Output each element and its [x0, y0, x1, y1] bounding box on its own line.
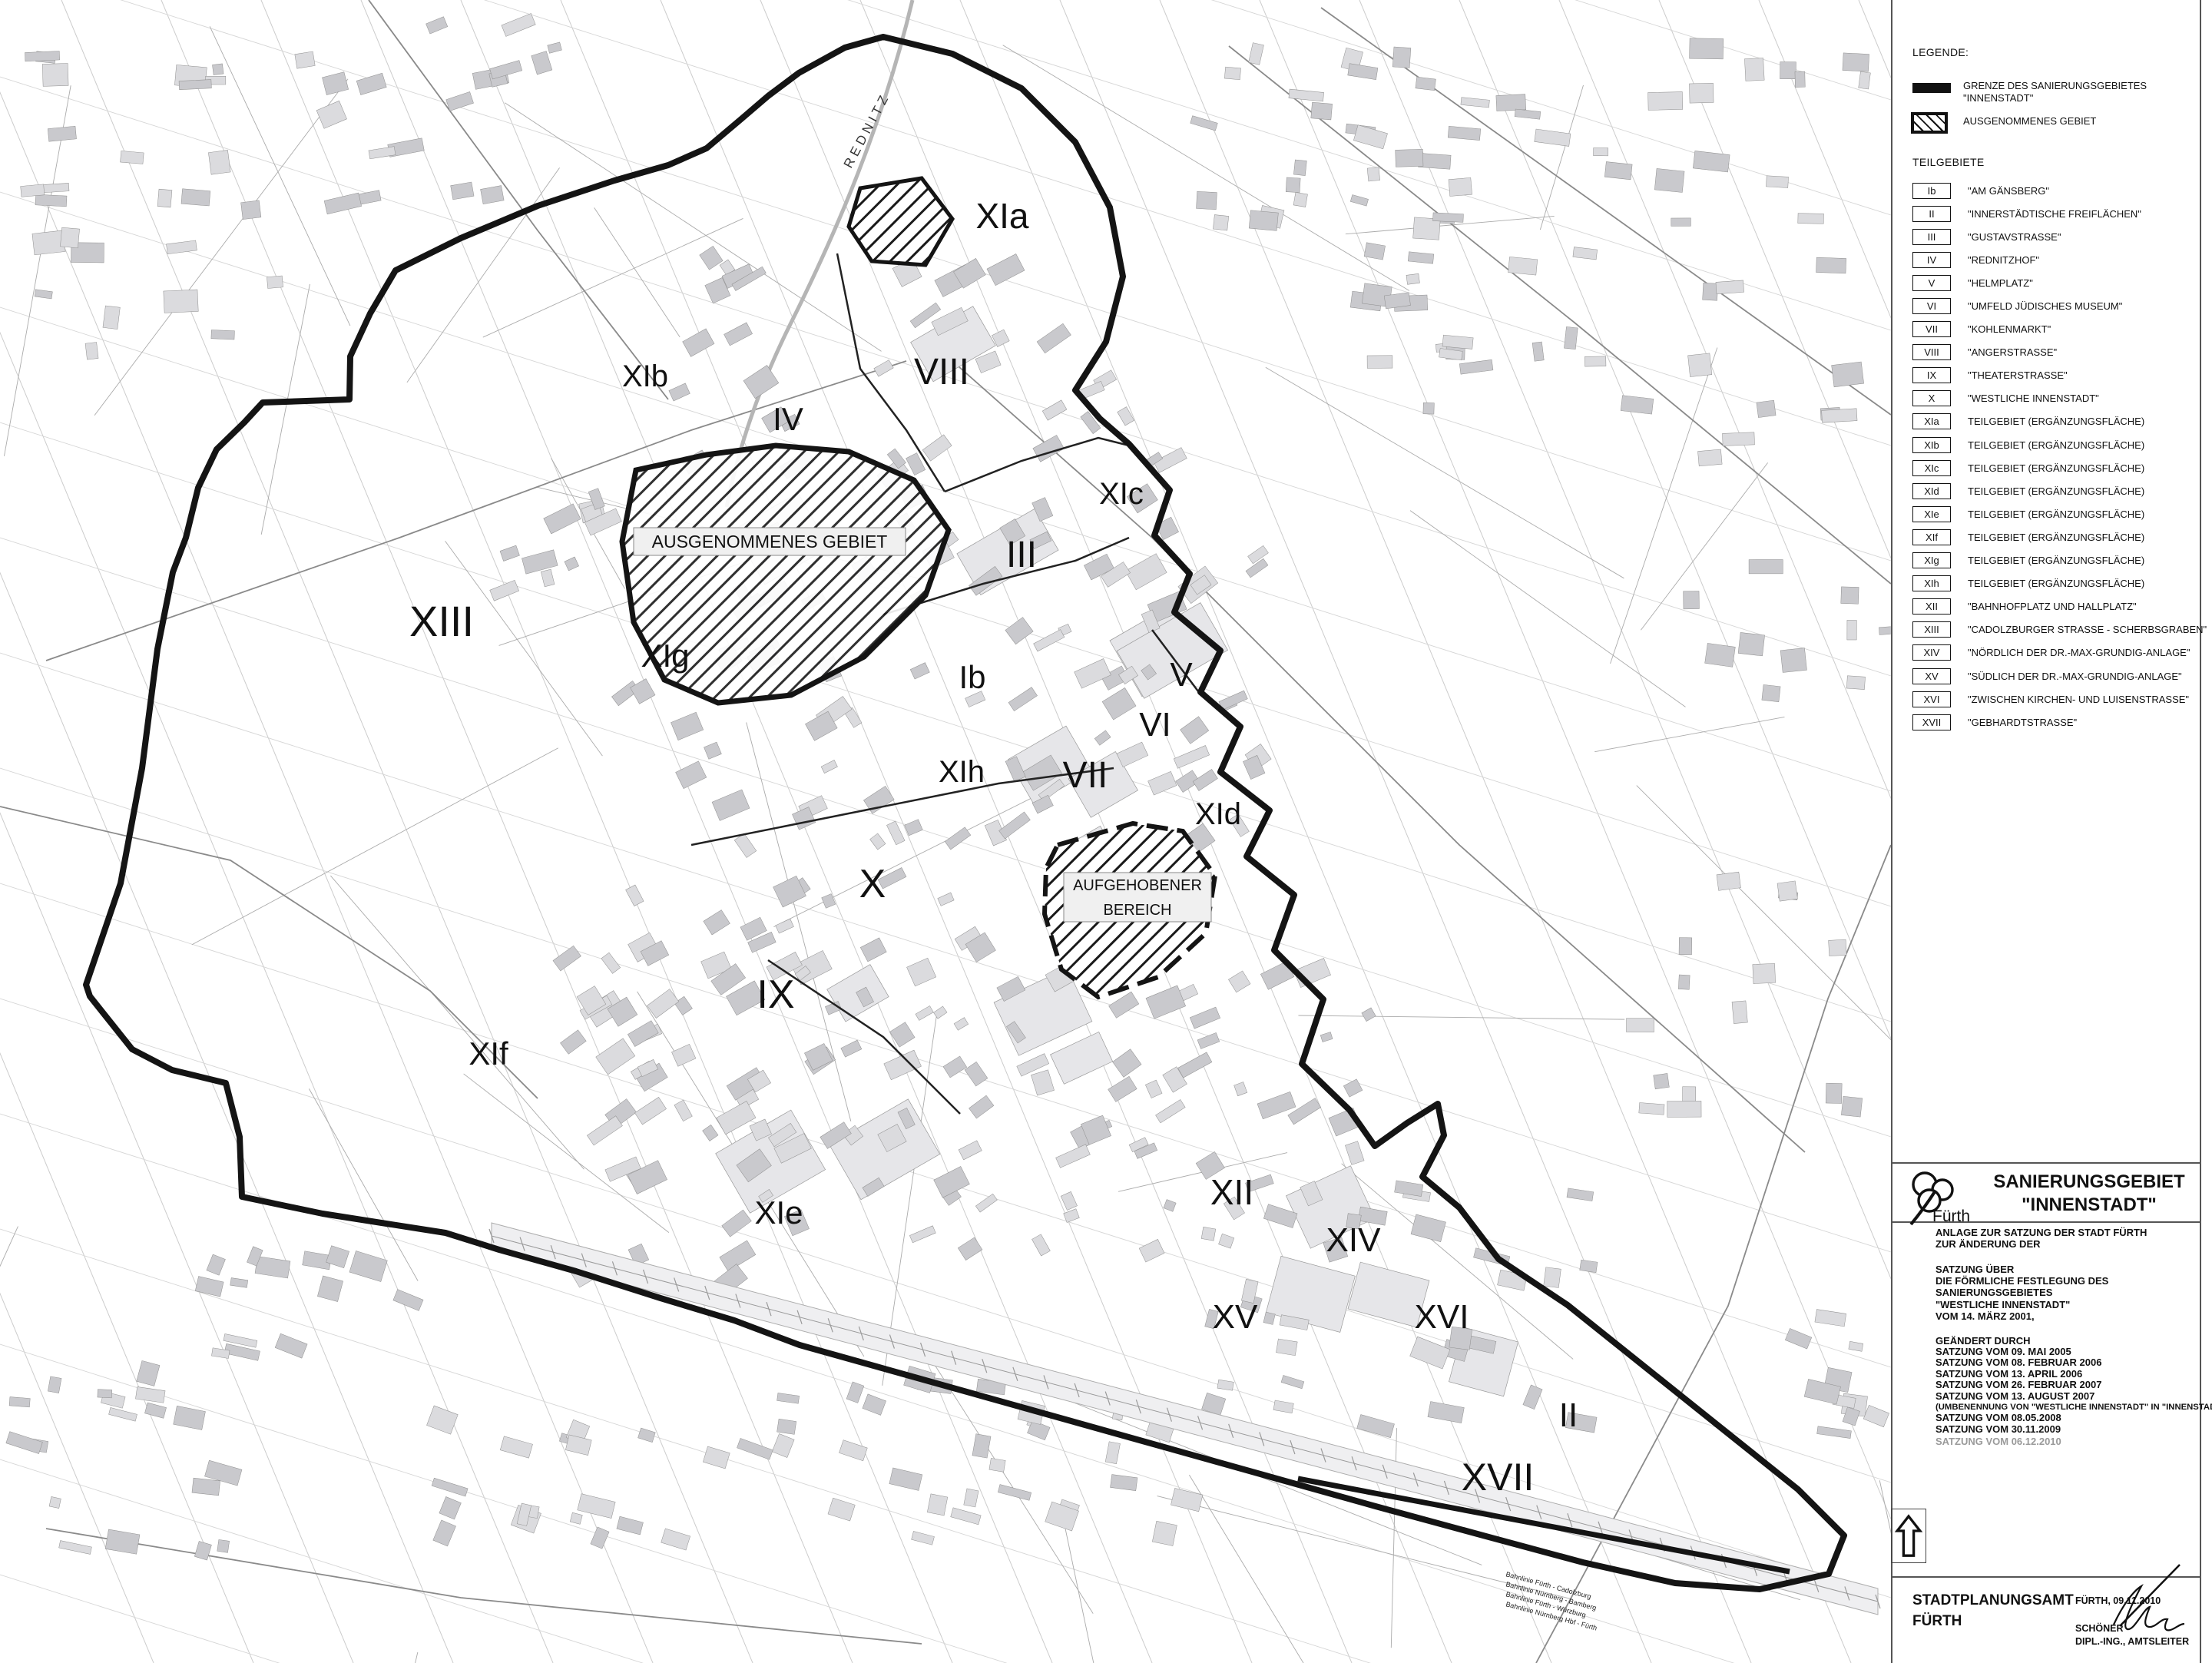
map-label-IV: IV: [773, 401, 803, 437]
plan-title: SANIERUNGSGEBIET "INNENSTADT": [1982, 1171, 2197, 1217]
map-label-XIa: XIa: [975, 196, 1028, 236]
river-label: REDNITZ: [841, 90, 893, 171]
teilgebiet-row: XV"SÜDLICH DER DR.-MAX-GRUNDIG-ANLAGE": [1912, 664, 2204, 687]
teilgebiet-name: TEILGEBIET (ERGÄNZUNGSFLÄCHE): [1968, 416, 2144, 427]
parcel-lines: [0, 0, 1891, 1663]
teilgebiet-row: XIhTEILGEBIET (ERGÄNZUNGSFLÄCHE): [1912, 572, 2204, 595]
office-name: STADTPLANUNGSAMT FÜRTH: [1912, 1590, 2074, 1632]
teilgebiet-code: XIb: [1912, 437, 1951, 453]
teilgebiet-row: XVII"GEBHARDTSTRASSE": [1912, 711, 2204, 734]
map-label-XIg: XIg: [641, 638, 689, 674]
teilgebiet-name: "CADOLZBURGER STRASSE - SCHERBSGRABEN": [1968, 624, 2207, 635]
teilgebiet-name: "NÖRDLICH DER DR.-MAX-GRUNDIG-ANLAGE": [1968, 647, 2190, 658]
teilgebiet-name: TEILGEBIET (ERGÄNZUNGSFLÄCHE): [1968, 555, 2144, 566]
title-block-line: SATZUNG VOM 30.11.2009: [1936, 1424, 2200, 1435]
map-label-XIb: XIb: [622, 359, 668, 393]
teilgebiet-code: Ib: [1912, 183, 1951, 199]
teilgebiet-name: TEILGEBIET (ERGÄNZUNGSFLÄCHE): [1968, 485, 2144, 497]
teilgebiet-name: "GUSTAVSTRASSE": [1968, 231, 2061, 243]
teilgebiet-name: "REDNITZHOF": [1968, 254, 2039, 266]
title-block-top-line: [1891, 1162, 2201, 1164]
teilgebiet-row: XIgTEILGEBIET (ERGÄNZUNGSFLÄCHE): [1912, 549, 2204, 572]
teilgebiet-row: VIII"ANGERSTRASSE": [1912, 341, 2204, 364]
plan-title-line2: "INNENSTADT": [1982, 1194, 2197, 1217]
teilgebiet-code: VII: [1912, 321, 1951, 337]
title-block-line: SATZUNG ÜBER: [1936, 1264, 2200, 1275]
map-label-XIII: XIII: [409, 597, 474, 645]
geaendert-gray-wrap: SATZUNG VOM 06.12.2010: [1936, 1436, 2200, 1447]
teilgebiet-row: Ib"AM GÄNSBERG": [1912, 179, 2204, 202]
office-line1: STADTPLANUNGSAMT: [1912, 1590, 2074, 1611]
teilgebiet-row: VI"UMFELD JÜDISCHES MUSEUM": [1912, 294, 2204, 317]
signature-icon: [2066, 1555, 2204, 1632]
teilgebiet-row: XII"BAHNHOFPLATZ UND HALLPLATZ": [1912, 595, 2204, 618]
satzung-text: SATZUNG ÜBERDIE FÖRMLICHE FESTLEGUNG DES…: [1936, 1264, 2200, 1322]
title-block-line: DIE FÖRMLICHE FESTLEGUNG DES: [1936, 1275, 2200, 1287]
teilgebiet-name: "HELMPLATZ": [1968, 277, 2033, 289]
map-label-III: III: [1006, 535, 1037, 575]
teilgebiet-code: XVII: [1912, 714, 1951, 730]
panel-divider-line: [1891, 0, 1892, 1663]
map-label-IX: IX: [757, 972, 794, 1017]
teilgebiet-row: IX"THEATERSTRASSE": [1912, 364, 2204, 387]
title-block-line: ZUR ÄNDERUNG DER: [1936, 1238, 2200, 1250]
teilgebiet-row: XIcTEILGEBIET (ERGÄNZUNGSFLÄCHE): [1912, 456, 2204, 479]
teilgebiet-code: XIh: [1912, 575, 1951, 591]
teilgebiet-row: II"INNERSTÄDTISCHE FREIFLÄCHEN": [1912, 202, 2204, 225]
teilgebiet-code: XII: [1912, 598, 1951, 615]
map-label-II: II: [1559, 1396, 1578, 1434]
geaendert-gray-line: SATZUNG VOM 06.12.2010: [1936, 1436, 2200, 1447]
teilgebiet-code: III: [1912, 229, 1951, 245]
teilgebiet-code: XIf: [1912, 529, 1951, 545]
map-label-Ib: Ib: [959, 659, 985, 695]
teilgebiet-code: XIe: [1912, 506, 1951, 522]
map-label-V: V: [1170, 656, 1193, 694]
excluded-area-small: [849, 178, 952, 265]
teilgebiet-row: XIII"CADOLZBURGER STRASSE - SCHERBSGRABE…: [1912, 618, 2204, 641]
map-label-X: X: [859, 862, 886, 906]
map-label-XIV: XIV: [1326, 1221, 1382, 1259]
plan-sheet: XIaXIbIVVIIIXIcIIIXIIIXIgIbVVIXIhVIIXIdX…: [0, 0, 2212, 1663]
teilgebiet-name: "UMFELD JÜDISCHES MUSEUM": [1968, 300, 2122, 312]
legend-excluded-label: AUSGENOMMENES GEBIET: [1963, 115, 2096, 128]
map-label-XId: XId: [1195, 797, 1241, 831]
map-label-XIh: XIh: [939, 755, 985, 789]
geaendert-list: SATZUNG VOM 09. MAI 2005SATZUNG VOM 08. …: [1936, 1347, 2200, 1435]
teilgebiet-code: VI: [1912, 298, 1951, 314]
title-block-line: ANLAGE ZUR SATZUNG DER STADT FÜRTH: [1936, 1227, 2200, 1238]
teilgebiet-name: "INNERSTÄDTISCHE FREIFLÄCHEN": [1968, 208, 2141, 220]
excluded-area-symbol: [1911, 112, 1948, 134]
boundary-line-symbol: [1912, 83, 1951, 93]
city-map: XIaXIbIVVIIIXIcIIIXIIIXIgIbVVIXIhVIIXIdX…: [0, 0, 1891, 1663]
geaendert-title: GEÄNDERT DURCH: [1936, 1335, 2200, 1347]
boundary-rail-strip: [1298, 1479, 1790, 1572]
map-label-XIe: XIe: [754, 1194, 803, 1231]
north-arrow-box: [1891, 1509, 1926, 1563]
title-block-line: SATZUNG VOM 26. FEBRUAR 2007: [1936, 1380, 2200, 1390]
teilgebiete-title: TEILGEBIETE: [1912, 156, 1985, 168]
teilgebiet-name: TEILGEBIET (ERGÄNZUNGSFLÄCHE): [1968, 532, 2144, 543]
teilgebiet-code: XIg: [1912, 552, 1951, 568]
anlage-text: ANLAGE ZUR SATZUNG DER STADT FÜRTHZUR ÄN…: [1936, 1227, 2200, 1250]
teilgebiet-code: XV: [1912, 668, 1951, 684]
teilgebiete-list: Ib"AM GÄNSBERG"II"INNERSTÄDTISCHE FREIFL…: [1912, 179, 2204, 734]
teilgebiet-name: "ANGERSTRASSE": [1968, 346, 2057, 358]
teilgebiet-code: XIII: [1912, 621, 1951, 638]
title-block-line: SATZUNG VOM 13. AUGUST 2007: [1936, 1391, 2200, 1402]
teilgebiet-code: XIV: [1912, 644, 1951, 661]
teilgebiet-name: "KOHLENMARKT": [1968, 323, 2051, 335]
teilgebiet-code: XId: [1912, 483, 1951, 499]
teilgebiet-row: VII"KOHLENMARKT": [1912, 318, 2204, 341]
teilgebiet-name: "GEBHARDTSTRASSE": [1968, 717, 2077, 728]
map-label-VIII: VIII: [914, 352, 969, 393]
teilgebiet-name: "SÜDLICH DER DR.-MAX-GRUNDIG-ANLAGE": [1968, 671, 2182, 682]
title-block-line: SATZUNG VOM 09. MAI 2005: [1936, 1347, 2200, 1357]
teilgebiet-name: TEILGEBIET (ERGÄNZUNGSFLÄCHE): [1968, 509, 2144, 520]
teilgebiet-row: III"GUSTAVSTRASSE": [1912, 225, 2204, 248]
signer-role: DIPL.-ING., AMTSLEITER: [2075, 1635, 2189, 1648]
title-block-line: SATZUNG VOM 13. APRIL 2006: [1936, 1369, 2200, 1380]
teilgebiet-code: IV: [1912, 252, 1951, 268]
teilgebiet-name: TEILGEBIET (ERGÄNZUNGSFLÄCHE): [1968, 439, 2144, 451]
map-label-XIc: XIc: [1099, 477, 1144, 511]
legend-boundary-line1: GRENZE DES SANIERUNGSGEBIETES: [1963, 80, 2147, 92]
map-label-XVII: XVII: [1462, 1456, 1534, 1499]
map-label-XIf: XIf: [469, 1035, 508, 1072]
teilgebiet-code: XVI: [1912, 691, 1951, 707]
north-arrow-icon: [1894, 1512, 1923, 1560]
teilgebiet-row: XIaTEILGEBIET (ERGÄNZUNGSFLÄCHE): [1912, 410, 2204, 433]
plan-title-line1: SANIERUNGSGEBIET: [1982, 1171, 2197, 1194]
teilgebiet-name: "WESTLICHE INNENSTADT": [1968, 393, 2099, 404]
title-block-line: VOM 14. MÄRZ 2001,: [1936, 1310, 2200, 1322]
teilgebiet-row: IV"REDNITZHOF": [1912, 248, 2204, 271]
teilgebiet-code: IX: [1912, 367, 1951, 383]
signer-block: SCHÖNER DIPL.-ING., AMTSLEITER: [2075, 1622, 2189, 1648]
map-label-VI: VI: [1139, 706, 1171, 744]
teilgebiet-name: "THEATERSTRASSE": [1968, 369, 2068, 381]
title-block-line: (UMBENENNUNG VON "WESTLICHE INNENSTADT" …: [1936, 1402, 2200, 1413]
teilgebiet-code: X: [1912, 390, 1951, 406]
teilgebiet-row: XIV"NÖRDLICH DER DR.-MAX-GRUNDIG-ANLAGE": [1912, 641, 2204, 664]
map-label-XII: XII: [1210, 1172, 1253, 1212]
teilgebiet-name: "AM GÄNSBERG": [1968, 185, 2049, 197]
railway: [489, 1223, 1880, 1615]
teilgebiet-row: V"HELMPLATZ": [1912, 271, 2204, 294]
map-label-VII: VII: [1063, 755, 1108, 796]
teilgebiet-row: XIdTEILGEBIET (ERGÄNZUNGSFLÄCHE): [1912, 479, 2204, 502]
teilgebiet-code: XIa: [1912, 413, 1951, 429]
revoked-area-label: AUFGEHOBENER: [1073, 877, 1202, 894]
teilgebiet-code: II: [1912, 206, 1951, 222]
logo-city-text: Fürth: [1932, 1207, 1970, 1226]
teilgebiet-code: VIII: [1912, 344, 1951, 360]
title-block-line: SANIERUNGSGEBIETES: [1936, 1287, 2200, 1298]
title-block-line: SATZUNG VOM 08. FEBRUAR 2006: [1936, 1357, 2200, 1368]
teilgebiet-name: TEILGEBIET (ERGÄNZUNGSFLÄCHE): [1968, 462, 2144, 474]
teilgebiet-name: "BAHNHOFPLATZ UND HALLPLATZ": [1968, 601, 2137, 612]
teilgebiet-row: XIbTEILGEBIET (ERGÄNZUNGSFLÄCHE): [1912, 433, 2204, 456]
legend-title: LEGENDE:: [1912, 46, 1969, 58]
teilgebiet-code: V: [1912, 275, 1951, 291]
office-line2: FÜRTH: [1912, 1611, 2074, 1632]
map-label-XVI: XVI: [1415, 1298, 1469, 1336]
title-block-line: SATZUNG VOM 08.05.2008: [1936, 1413, 2200, 1423]
teilgebiet-name: "ZWISCHEN KIRCHEN- UND LUISENSTRASSE": [1968, 694, 2189, 705]
revoked-area-label: BEREICH: [1104, 902, 1172, 919]
signer-name: SCHÖNER: [2075, 1622, 2189, 1635]
teilgebiet-row: XVI"ZWISCHEN KIRCHEN- UND LUISENSTRASSE": [1912, 687, 2204, 711]
teilgebiet-row: XIeTEILGEBIET (ERGÄNZUNGSFLÄCHE): [1912, 502, 2204, 525]
teilgebiet-row: XIfTEILGEBIET (ERGÄNZUNGSFLÄCHE): [1912, 525, 2204, 548]
teilgebiet-code: XIc: [1912, 460, 1951, 476]
legend-boundary-label: GRENZE DES SANIERUNGSGEBIETES "INNENSTAD…: [1963, 80, 2147, 104]
teilgebiet-row: X"WESTLICHE INNENSTADT": [1912, 387, 2204, 410]
map-label-XV: XV: [1213, 1298, 1258, 1336]
title-block-line: "WESTLICHE INNENSTADT": [1936, 1299, 2200, 1310]
geaendert-title-line: GEÄNDERT DURCH: [1936, 1335, 2200, 1347]
teilgebiet-name: TEILGEBIET (ERGÄNZUNGSFLÄCHE): [1968, 578, 2144, 589]
legend-boundary-line2: "INNENSTADT": [1963, 92, 2147, 104]
excluded-area-label: AUSGENOMMENES GEBIET: [652, 532, 888, 552]
